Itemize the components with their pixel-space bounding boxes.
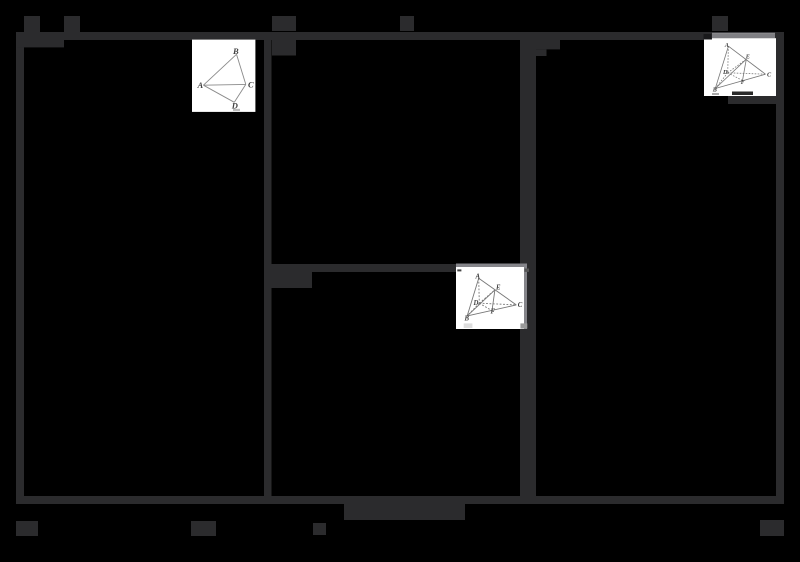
- svg-text:C: C: [518, 302, 523, 309]
- svg-text:D: D: [722, 69, 728, 76]
- svg-text:F: F: [491, 309, 496, 316]
- svg-text:D: D: [473, 300, 479, 307]
- svg-text:A: A: [724, 42, 729, 49]
- svg-text:B: B: [464, 316, 470, 323]
- svg-text:B: B: [712, 87, 717, 94]
- svg-text:B: B: [232, 46, 239, 56]
- svg-text:C: C: [248, 80, 254, 90]
- svg-text:E: E: [495, 285, 501, 292]
- svg-text:E: E: [745, 54, 750, 61]
- svg-text:A: A: [197, 80, 204, 90]
- svg-text:A: A: [475, 274, 481, 281]
